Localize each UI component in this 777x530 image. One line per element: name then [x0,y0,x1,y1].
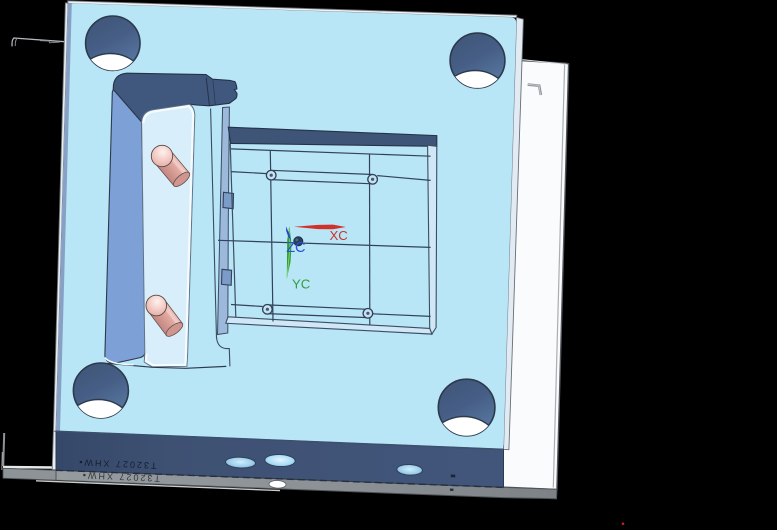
svg-text:YC: YC [292,277,311,292]
svg-text:XC: XC [330,228,349,243]
svg-text:ZC: ZC [286,240,305,256]
